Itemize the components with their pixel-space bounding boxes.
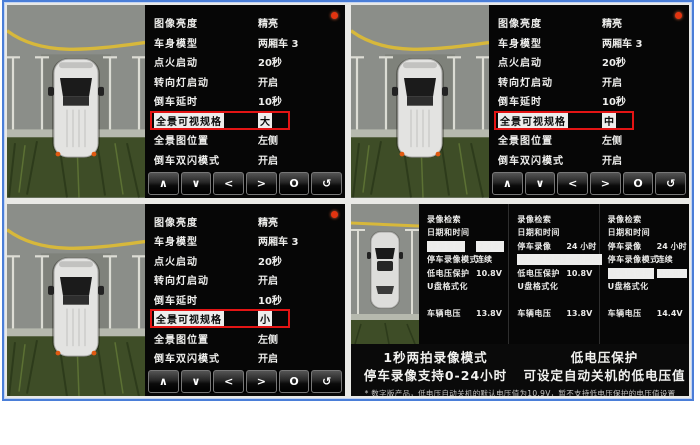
menu-item-label: 转向灯启动 — [154, 74, 209, 89]
left-mirror — [392, 87, 398, 96]
nav-down-button[interactable]: ∨ — [525, 172, 556, 195]
side-camera-view — [351, 204, 419, 344]
settings-menu: 图像亮度精亮车身模型两厢车 3点火启动20秒转向灯启动开启倒车延时10秒全景可视… — [145, 204, 345, 397]
menu-rows: 图像亮度精亮车身模型两厢车 3点火启动20秒转向灯启动开启倒车延时10秒全景可视… — [498, 10, 685, 169]
menu-rows: 图像亮度精亮车身模型两厢车 3点火启动20秒转向灯启动开启倒车延时10秒全景可视… — [154, 209, 341, 368]
panel-item-label: 停车录像模式 — [517, 254, 572, 265]
settings-screen-size-small: 图像亮度精亮车身模型两厢车 3点火启动20秒转向灯启动开启倒车延时10秒全景可视… — [7, 204, 345, 397]
panel-item-label: U盘格式化 — [517, 281, 558, 292]
nav-up-button[interactable]: ∧ — [148, 172, 179, 195]
panel-item-value: 13.8V — [476, 309, 502, 318]
caption-line: 低电压保护 — [520, 349, 689, 368]
nav-ok-button[interactable]: O — [279, 172, 310, 195]
menu-item-value: 10秒 — [602, 93, 626, 108]
menu-item-label: 点火启动 — [154, 253, 198, 268]
menu-item-8[interactable]: 倒车双闪模式开启 — [498, 150, 685, 170]
nav-down-button[interactable]: ∨ — [181, 370, 212, 393]
panel-item[interactable]: 停车录像模式一秒两拍 — [517, 253, 595, 267]
menu-item-4[interactable]: 转向灯启动开启 — [154, 270, 341, 290]
menu-item-value: 开启 — [602, 152, 622, 167]
panel-item-value: 10.8V — [476, 269, 502, 278]
left-taillight — [400, 152, 405, 157]
menu-item-value: 左侧 — [258, 132, 278, 147]
menu-item-label: 车身模型 — [154, 233, 198, 248]
menu-navbar: ∧∨<>O↺ — [492, 172, 686, 195]
menu-item-value: 小 — [258, 311, 272, 326]
menu-item-value: 10秒 — [258, 292, 282, 307]
nav-right-button[interactable]: > — [246, 172, 277, 195]
windshield — [375, 248, 395, 259]
panel-item-value: 10.8V — [566, 269, 592, 278]
birdseye-camera-view — [351, 5, 489, 198]
parking-scene-image — [7, 5, 145, 198]
recording-settings-panel-3: 录像检索日期和时间停车录像24 小时停车录像模式连续低电压保护10.8VU盘格式… — [599, 204, 689, 344]
settings-menu: 图像亮度精亮车身模型两厢车 3点火启动20秒转向灯启动开启倒车延时10秒全景可视… — [145, 5, 345, 198]
menu-item-label: 倒车延时 — [498, 93, 542, 108]
left-taillight — [56, 152, 61, 157]
nav-up-button[interactable]: ∧ — [148, 370, 179, 393]
menu-item-value: 精亮 — [602, 15, 622, 30]
menu-item-value: 精亮 — [258, 214, 278, 229]
right-mirror — [442, 87, 448, 96]
panel-item-label: 录像检索 — [427, 214, 461, 225]
panel-item[interactable]: 录像检索 — [608, 213, 686, 227]
car-top-view — [392, 58, 448, 158]
menu-navbar: ∧∨<>O↺ — [148, 172, 342, 195]
captions-area: 1秒两拍录像模式 停车录像支持0-24小时 低电压保护 可设定自动关机的低电压值… — [351, 344, 689, 397]
sunroof — [407, 97, 433, 106]
panel-item[interactable]: 录像检索 — [427, 213, 505, 227]
menu-item-value: 精亮 — [258, 15, 278, 30]
menu-navbar: ∧∨<>O↺ — [148, 370, 342, 393]
menu-item-value: 两厢车 3 — [258, 233, 298, 248]
nav-left-button[interactable]: < — [213, 370, 244, 393]
nav-back-button[interactable]: ↺ — [311, 370, 342, 393]
menu-item-4[interactable]: 转向灯启动开启 — [498, 72, 685, 92]
nav-back-button[interactable]: ↺ — [311, 172, 342, 195]
panel-item[interactable]: 日期和时间 — [427, 226, 505, 240]
menu-item-label: 倒车延时 — [154, 292, 198, 307]
parking-scene-image-small — [351, 204, 419, 344]
menu-item-1[interactable]: 图像亮度精亮 — [154, 13, 341, 33]
nav-ok-button[interactable]: O — [279, 370, 310, 393]
panel-item-label: 车辆电压 — [427, 308, 461, 319]
menu-item-2[interactable]: 车身模型两厢车 3 — [154, 33, 341, 53]
menu-item-value: 20秒 — [258, 54, 282, 69]
recording-settings-panel-1: 录像检索日期和时间停车录像2 小时停车录像模式连续低电压保护10.8VU盘格式化… — [419, 204, 508, 344]
nav-left-button[interactable]: < — [557, 172, 588, 195]
menu-item-value: 大 — [258, 113, 272, 128]
sunroof — [377, 261, 393, 271]
menu-item-8[interactable]: 倒车双闪模式开启 — [154, 150, 341, 170]
panel-item-value: 连续 — [476, 254, 492, 265]
recording-panels: 录像检索日期和时间停车录像2 小时停车录像模式连续低电压保护10.8VU盘格式化… — [419, 204, 689, 344]
parking-scene-image — [7, 204, 145, 397]
caption-line: 停车录像支持0-24小时 — [351, 367, 520, 386]
nav-ok-button[interactable]: O — [623, 172, 654, 195]
nav-right-button[interactable]: > — [590, 172, 621, 195]
right-taillight — [92, 152, 97, 157]
menu-item-label: 倒车双闪模式 — [154, 152, 220, 167]
caption-line: 1秒两拍录像模式 — [351, 349, 520, 368]
panel-item-value: 14.4V — [657, 309, 683, 318]
panel-item-value: 24 小时 — [657, 241, 687, 252]
left-mirror — [48, 87, 54, 96]
panel-item-label: 停车录像模式 — [427, 254, 478, 265]
menu-item-value: 开启 — [258, 74, 278, 89]
recording-settings-screen: 录像检索日期和时间停车录像2 小时停车录像模式连续低电压保护10.8VU盘格式化… — [351, 204, 689, 397]
panel-item[interactable]: 低电压保护10.8V — [608, 267, 686, 281]
nav-back-button[interactable]: ↺ — [655, 172, 686, 195]
nav-up-button[interactable]: ∧ — [492, 172, 523, 195]
windshield — [60, 277, 92, 296]
panel-item-label: 日期和时间 — [517, 227, 560, 238]
panel-item[interactable]: U盘格式化 — [427, 280, 505, 294]
windshield — [404, 78, 436, 97]
panel-item-label: 低电压保护 — [517, 268, 560, 279]
panel-item-label: 录像检索 — [608, 214, 642, 225]
left-taillight — [56, 350, 61, 355]
menu-item-label: 点火启动 — [498, 54, 542, 69]
menu-item-label: 图像亮度 — [154, 15, 198, 30]
settings-menu: 图像亮度精亮车身模型两厢车 3点火启动20秒转向灯启动开启倒车延时10秒全景可视… — [489, 5, 689, 198]
panel-item[interactable]: 录像检索 — [517, 213, 595, 227]
panel-item-value: 24 小时 — [566, 241, 596, 252]
menu-item-value: 左侧 — [602, 132, 622, 147]
menu-item-value: 两厢车 3 — [602, 35, 642, 50]
menu-item-7[interactable]: 全景图位置左侧 — [154, 329, 341, 349]
menu-item-4[interactable]: 转向灯启动开启 — [154, 72, 341, 92]
menu-item-value: 两厢车 3 — [258, 35, 298, 50]
menu-item-label: 车身模型 — [498, 35, 542, 50]
sunroof — [63, 295, 89, 304]
menu-item-label: 点火启动 — [154, 54, 198, 69]
panel-item[interactable]: 日期和时间 — [517, 226, 595, 240]
panel-item[interactable]: U盘格式化 — [517, 280, 595, 294]
panel-item[interactable]: 停车录像24 小时 — [517, 240, 595, 254]
settings-screen-size-medium: 图像亮度精亮车身模型两厢车 3点火启动20秒转向灯启动开启倒车延时10秒全景可视… — [351, 5, 689, 198]
menu-item-value: 开启 — [258, 350, 278, 365]
rear-window — [376, 286, 394, 294]
menu-item-value: 20秒 — [258, 253, 282, 268]
menu-item-value: 开启 — [258, 272, 278, 287]
menu-item-5[interactable]: 倒车延时10秒 — [498, 91, 685, 111]
menu-item-label: 车身模型 — [154, 35, 198, 50]
car-top-view — [367, 231, 403, 309]
panel-item-value: 10.8V — [657, 269, 687, 278]
right-mirror — [399, 252, 403, 259]
menu-item-value: 左侧 — [258, 331, 278, 346]
panel-item-label: 低电压保护 — [427, 268, 470, 279]
panel-item-value: 2 小时 — [476, 241, 504, 252]
menu-item-label: 倒车双闪模式 — [154, 350, 220, 365]
panel-item-label: 停车录像 — [427, 241, 465, 252]
right-taillight — [92, 350, 97, 355]
menu-item-3[interactable]: 点火启动20秒 — [154, 251, 341, 271]
car-top-view — [48, 58, 104, 158]
panel-item-label: 低电压保护 — [608, 268, 655, 279]
panel-item[interactable]: 停车录像模式连续 — [427, 253, 505, 267]
panel-item-label: 停车录像 — [608, 241, 642, 252]
menu-item-3[interactable]: 点火启动20秒 — [154, 52, 341, 72]
menu-item-value: 10秒 — [258, 93, 282, 108]
menu-item-1[interactable]: 图像亮度精亮 — [154, 212, 341, 232]
menu-item-2[interactable]: 车身模型两厢车 3 — [498, 33, 685, 53]
menu-item-label: 倒车双闪模式 — [498, 152, 564, 167]
right-taillight — [436, 152, 441, 157]
menu-item-3[interactable]: 点火启动20秒 — [498, 52, 685, 72]
nav-right-button[interactable]: > — [246, 370, 277, 393]
panel-item[interactable]: 日期和时间 — [608, 226, 686, 240]
menu-item-6[interactable]: 全景可视规格中 — [498, 111, 685, 131]
windshield — [60, 78, 92, 97]
parking-scene-image — [351, 5, 489, 198]
menu-item-value: 20秒 — [602, 54, 626, 69]
caption-line: 可设定自动关机的低电压值 — [520, 367, 689, 386]
menu-item-label: 倒车延时 — [154, 93, 198, 108]
screens-grid: 图像亮度精亮车身模型两厢车 3点火启动20秒转向灯启动开启倒车延时10秒全景可视… — [7, 5, 689, 396]
menu-item-7[interactable]: 全景图位置左侧 — [498, 130, 685, 150]
panel-item-label: 日期和时间 — [427, 227, 470, 238]
sunroof — [63, 97, 89, 106]
settings-screen-size-large: 图像亮度精亮车身模型两厢车 3点火启动20秒转向灯启动开启倒车延时10秒全景可视… — [7, 5, 345, 198]
footnote-text: * 数字版产品，低电压自动关机的默认电压值为10.9V，暂不支持低电压保护的电压… — [351, 388, 689, 396]
panel-item-label: 车辆电压 — [517, 308, 551, 319]
panel-item-label: 停车录像模式 — [608, 254, 659, 265]
menu-item-7[interactable]: 全景图位置左侧 — [154, 130, 341, 150]
menu-item-5[interactable]: 倒车延时10秒 — [154, 91, 341, 111]
menu-item-label: 图像亮度 — [498, 15, 542, 30]
menu-item-label: 全景图位置 — [154, 132, 209, 147]
menu-item-label: 转向灯启动 — [498, 74, 553, 89]
panel-item[interactable]: 低电压保护10.8V — [427, 267, 505, 281]
left-mirror — [367, 252, 371, 259]
menu-item-2[interactable]: 车身模型两厢车 3 — [154, 231, 341, 251]
panel-item-label: 录像检索 — [517, 214, 551, 225]
menu-item-6[interactable]: 全景可视规格小 — [154, 309, 341, 329]
menu-item-6[interactable]: 全景可视规格大 — [154, 111, 341, 131]
menu-item-8[interactable]: 倒车双闪模式开启 — [154, 348, 341, 368]
panel-item-value: 连续 — [657, 254, 673, 265]
recording-settings-panel-2: 录像检索日期和时间停车录像24 小时停车录像模式一秒两拍低电压保护10.8VU盘… — [508, 204, 598, 344]
panel-item[interactable]: 车辆电压13.8V — [427, 307, 505, 321]
panel-item-value: 一秒两拍 — [566, 254, 602, 265]
caption-recording-mode: 1秒两拍录像模式 停车录像支持0-24小时 — [351, 349, 520, 387]
panel-item[interactable]: 停车录像24 小时 — [608, 240, 686, 254]
panel-item[interactable]: 低电压保护10.8V — [517, 267, 595, 281]
panel-item[interactable]: 停车录像2 小时 — [427, 240, 505, 254]
panel-item-label: 车辆电压 — [608, 308, 642, 319]
panel-item-value: 13.8V — [566, 309, 592, 318]
menu-rows: 图像亮度精亮车身模型两厢车 3点火启动20秒转向灯启动开启倒车延时10秒全景可视… — [154, 10, 341, 169]
birdseye-camera-view — [7, 5, 145, 198]
nav-down-button[interactable]: ∨ — [181, 172, 212, 195]
birdseye-camera-view — [7, 204, 145, 397]
panel-item[interactable]: 车辆电压14.4V — [608, 307, 686, 321]
panel-item-label: 停车录像 — [517, 241, 551, 252]
right-mirror — [98, 87, 104, 96]
left-mirror — [48, 285, 54, 294]
right-mirror — [98, 285, 104, 294]
menu-item-label: 全景图位置 — [154, 331, 209, 346]
page-frame: 图像亮度精亮车身模型两厢车 3点火启动20秒转向灯启动开启倒车延时10秒全景可视… — [2, 0, 694, 401]
menu-item-value: 中 — [602, 113, 616, 128]
caption-low-voltage: 低电压保护 可设定自动关机的低电压值 — [520, 349, 689, 387]
panel-item-label: 日期和时间 — [608, 227, 651, 238]
menu-item-1[interactable]: 图像亮度精亮 — [498, 13, 685, 33]
panel-item[interactable]: 停车录像模式连续 — [608, 253, 686, 267]
menu-item-label: 图像亮度 — [154, 214, 198, 229]
panel-item-label: U盘格式化 — [608, 281, 649, 292]
car-top-view — [48, 257, 104, 357]
menu-item-value: 开启 — [602, 74, 622, 89]
menu-item-label: 转向灯启动 — [154, 272, 209, 287]
panel-item-label: U盘格式化 — [427, 281, 468, 292]
menu-item-label: 全景图位置 — [498, 132, 553, 147]
panel-item[interactable]: 车辆电压13.8V — [517, 307, 595, 321]
menu-item-value: 开启 — [258, 152, 278, 167]
menu-item-5[interactable]: 倒车延时10秒 — [154, 290, 341, 310]
nav-left-button[interactable]: < — [213, 172, 244, 195]
panel-item[interactable]: U盘格式化 — [608, 280, 686, 294]
